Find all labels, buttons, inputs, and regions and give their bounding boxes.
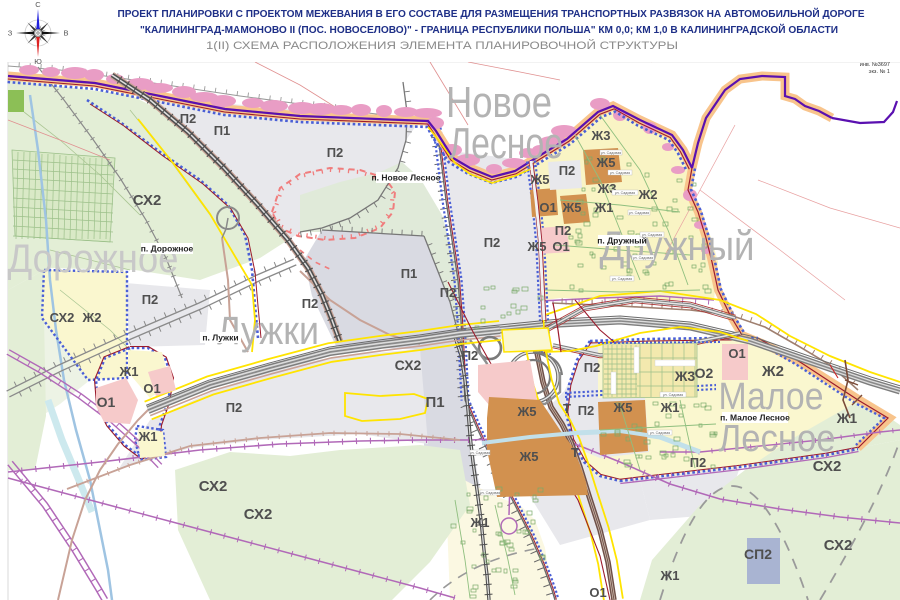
svg-text:П2: П2 (584, 360, 601, 375)
svg-text:О2: О2 (695, 365, 714, 381)
svg-text:ул. Садовая: ул. Садовая (642, 233, 662, 237)
svg-text:С: С (35, 0, 41, 9)
svg-text:Ж1: Ж1 (470, 515, 490, 530)
svg-text:Лесное: Лесное (719, 418, 836, 460)
svg-text:1(II) СХЕМА РАСПОЛОЖЕНИЯ ЭЛЕМЕ: 1(II) СХЕМА РАСПОЛОЖЕНИЯ ЭЛЕМЕНТА ПЛАНИР… (206, 39, 678, 52)
svg-text:Ж2: Ж2 (761, 363, 784, 380)
svg-text:П2: П2 (690, 455, 707, 470)
svg-text:ул. Садовая: ул. Садовая (612, 277, 632, 281)
svg-text:ул. Садовая: ул. Садовая (650, 431, 670, 435)
svg-text:Ж5: Ж5 (613, 400, 633, 415)
svg-text:П2: П2 (226, 400, 243, 415)
svg-text:п. Дорожное: п. Дорожное (141, 244, 194, 254)
svg-text:СХ2: СХ2 (244, 506, 273, 523)
svg-text:О1: О1 (552, 239, 569, 254)
svg-text:П1: П1 (401, 266, 418, 281)
svg-text:ул. Садовая: ул. Садовая (633, 256, 653, 260)
svg-text:СХ2: СХ2 (199, 478, 228, 495)
svg-text:Ж5: Ж5 (519, 449, 539, 464)
svg-text:П2: П2 (440, 285, 457, 300)
svg-text:О1: О1 (728, 346, 745, 361)
svg-text:Ж5: Ж5 (527, 239, 547, 254)
svg-text:В: В (63, 29, 68, 38)
svg-text:Ж1: Ж1 (119, 364, 139, 379)
svg-text:Ж1: Ж1 (836, 410, 858, 426)
svg-text:П2: П2 (578, 403, 595, 418)
svg-text:П2: П2 (555, 223, 572, 238)
svg-text:ул. Садовая: ул. Садовая (470, 451, 490, 455)
svg-text:СХ2: СХ2 (813, 458, 842, 475)
svg-text:П2: П2 (180, 111, 197, 126)
svg-text:Лужки: Лужки (217, 309, 319, 353)
svg-text:СХ2: СХ2 (824, 537, 853, 554)
svg-text:Ж2: Ж2 (638, 187, 658, 202)
svg-text:ул. Садовая: ул. Садовая (601, 151, 621, 155)
svg-text:Ж3: Ж3 (674, 368, 696, 384)
svg-text:О1: О1 (539, 200, 556, 215)
svg-text:П2: П2 (142, 292, 159, 307)
svg-text:ул. Садовая: ул. Садовая (663, 393, 683, 397)
svg-text:Ж5: Ж5 (562, 200, 582, 215)
svg-text:СХ2: СХ2 (395, 357, 422, 373)
svg-text:инв. №3697: инв. №3697 (860, 62, 890, 68)
svg-text:Ж5: Ж5 (596, 155, 616, 170)
svg-text:ПРОЕКТ ПЛАНИРОВКИ С ПРОЕКТОМ М: ПРОЕКТ ПЛАНИРОВКИ С ПРОЕКТОМ МЕЖЕВАНИЯ В… (118, 7, 865, 20)
svg-text:Ж1: Ж1 (138, 429, 158, 444)
svg-text:П2: П2 (327, 145, 344, 160)
svg-text:п. Лужки: п. Лужки (202, 333, 238, 343)
svg-text:П2: П2 (559, 163, 576, 178)
svg-text:О1: О1 (143, 381, 160, 396)
svg-text:ул. Садовая: ул. Садовая (480, 491, 500, 495)
svg-text:п. Новое Лесное: п. Новое Лесное (372, 173, 441, 183)
svg-text:Лесное: Лесное (449, 119, 563, 168)
svg-text:СХ2: СХ2 (50, 310, 75, 325)
svg-text:Т: Т (571, 445, 579, 460)
svg-text:Ж3: Ж3 (591, 128, 611, 143)
svg-text:п. Малое Лесное: п. Малое Лесное (720, 413, 790, 423)
svg-text:П2: П2 (484, 235, 501, 250)
svg-text:Т: Т (563, 401, 571, 416)
svg-text:Ж2: Ж2 (82, 310, 102, 325)
svg-text:Ю: Ю (34, 57, 42, 66)
svg-text:СП2: СП2 (744, 546, 772, 562)
svg-text:З: З (8, 29, 13, 38)
svg-text:П2: П2 (462, 348, 479, 363)
svg-text:"КАЛИНИНГРАД-МАМОНОВО II (ПОС.: "КАЛИНИНГРАД-МАМОНОВО II (ПОС. НОВОСЕЛОВ… (140, 23, 838, 36)
svg-text:П2: П2 (302, 296, 319, 311)
svg-text:О1: О1 (589, 585, 606, 600)
svg-text:П1: П1 (425, 394, 444, 411)
svg-text:СХ2: СХ2 (133, 192, 162, 209)
svg-text:Ж5: Ж5 (517, 404, 537, 419)
svg-text:ул. Садовая: ул. Садовая (610, 171, 630, 175)
svg-text:П1: П1 (214, 123, 231, 138)
svg-text:Ж1: Ж1 (660, 400, 680, 415)
svg-text:Ж1: Ж1 (660, 568, 680, 583)
svg-text:Ж5: Ж5 (530, 172, 550, 187)
svg-text:п. Дружный: п. Дружный (597, 236, 646, 246)
svg-text:Ж1: Ж1 (594, 200, 614, 215)
svg-text:экз. № 1: экз. № 1 (869, 69, 890, 75)
svg-text:О1: О1 (97, 394, 116, 410)
svg-text:ул. Садовая: ул. Садовая (629, 211, 649, 215)
svg-text:ул. Садовая: ул. Садовая (615, 191, 635, 195)
